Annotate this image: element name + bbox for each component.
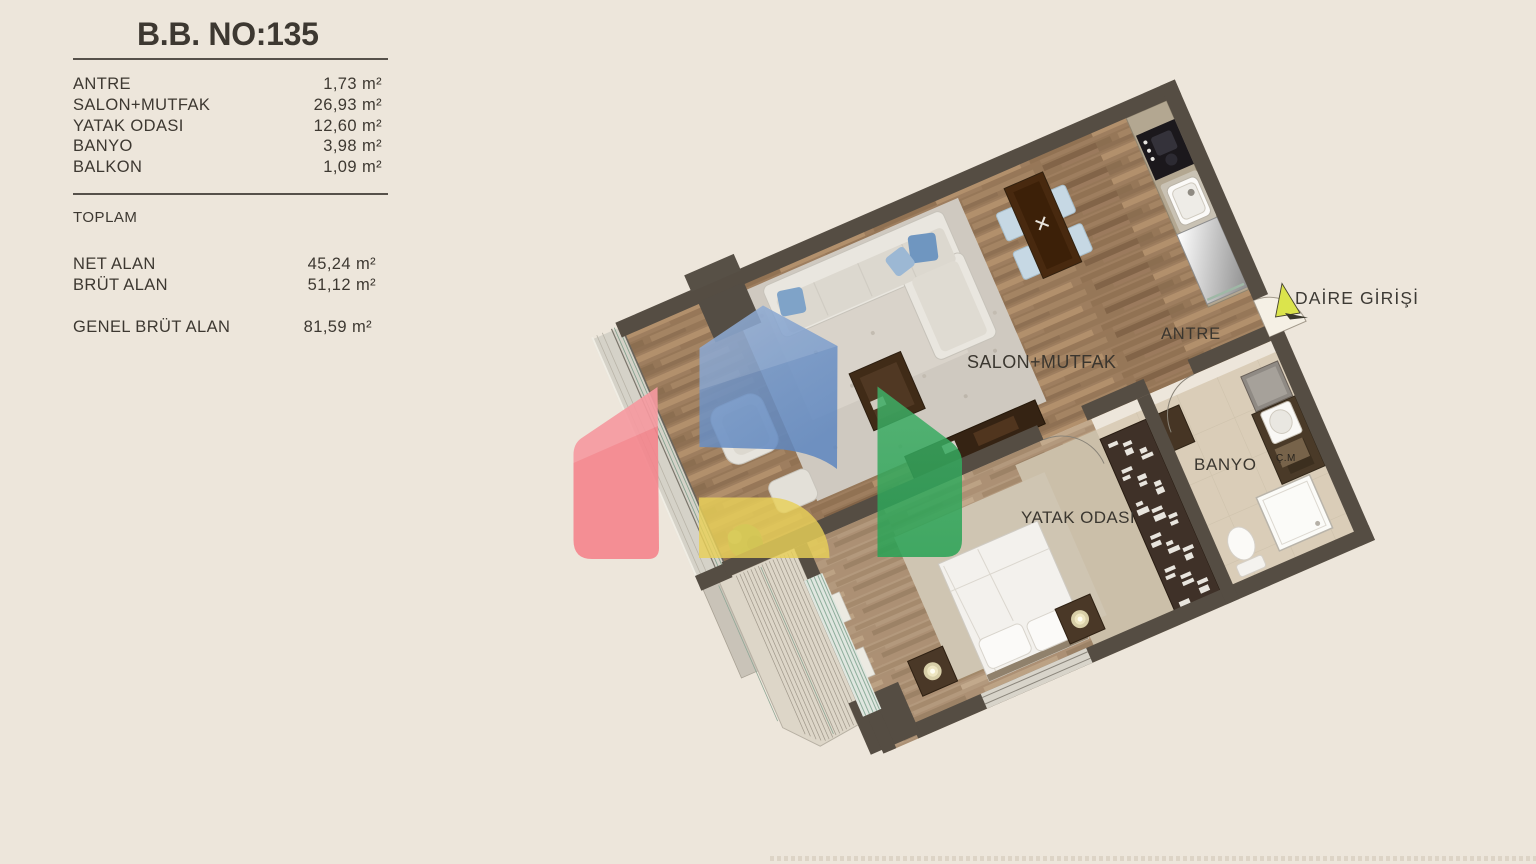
svg-text:SALON+MUTFAK: SALON+MUTFAK	[967, 352, 1116, 372]
svg-text:ANTRE: ANTRE	[1161, 325, 1221, 343]
svg-text:DAİRE GİRİŞİ: DAİRE GİRİŞİ	[1295, 288, 1419, 308]
svg-text:Ç.M: Ç.M	[1276, 453, 1296, 464]
svg-text:YATAK ODASI: YATAK ODASI	[1021, 508, 1135, 527]
svg-text:BANYO: BANYO	[1194, 455, 1257, 474]
